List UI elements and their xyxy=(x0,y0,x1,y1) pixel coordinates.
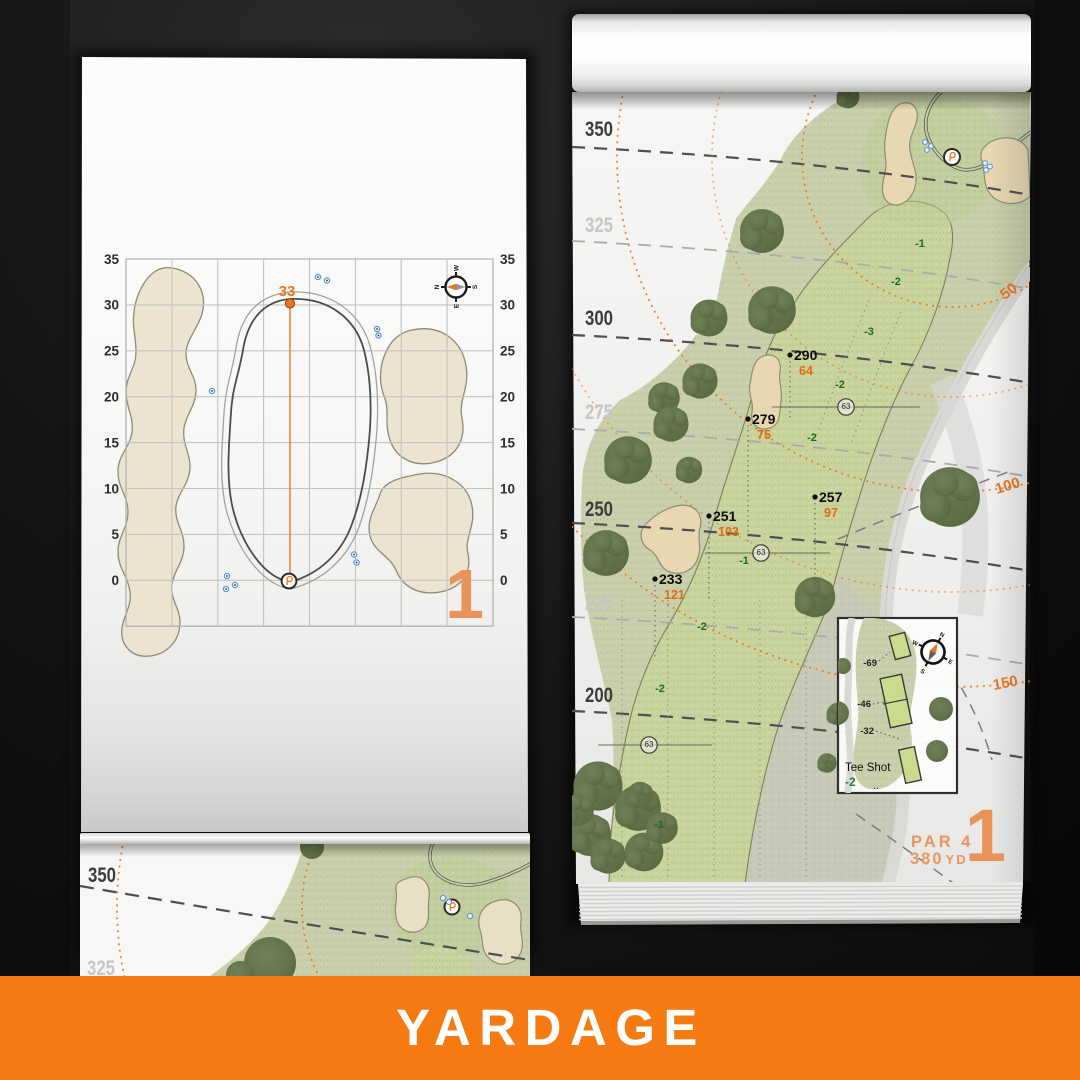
svg-text:300: 300 xyxy=(585,307,613,330)
svg-text:-3: -3 xyxy=(864,326,874,338)
svg-text:75: 75 xyxy=(757,428,771,442)
svg-text:0: 0 xyxy=(500,573,508,588)
svg-text:121: 121 xyxy=(664,588,685,602)
svg-text:225: 225 xyxy=(585,592,613,615)
svg-text:-2: -2 xyxy=(697,621,707,633)
svg-text:251: 251 xyxy=(713,508,737,524)
svg-text:-2: -2 xyxy=(807,432,817,444)
svg-text:25: 25 xyxy=(500,344,516,359)
svg-text:275: 275 xyxy=(585,401,613,424)
svg-text:-2: -2 xyxy=(891,276,901,288)
svg-text:64: 64 xyxy=(799,364,813,378)
svg-text:-32: -32 xyxy=(860,726,874,737)
svg-text:5: 5 xyxy=(500,527,508,542)
svg-text:-1: -1 xyxy=(739,555,749,567)
svg-text:63: 63 xyxy=(757,548,766,557)
svg-text:350: 350 xyxy=(88,864,116,887)
svg-text:-1: -1 xyxy=(915,238,925,250)
svg-text:20: 20 xyxy=(500,390,515,405)
svg-text:33: 33 xyxy=(279,283,296,300)
svg-text:35: 35 xyxy=(500,252,516,267)
svg-text:30: 30 xyxy=(500,298,515,313)
svg-text:N: N xyxy=(434,284,441,289)
svg-text:63: 63 xyxy=(842,402,851,411)
svg-text:0: 0 xyxy=(111,573,119,588)
svg-text:Tee Shot: Tee Shot xyxy=(845,762,891,774)
svg-text:15: 15 xyxy=(500,435,516,450)
svg-text:5: 5 xyxy=(111,527,119,542)
svg-text:63: 63 xyxy=(645,740,654,749)
svg-text:20: 20 xyxy=(104,390,119,405)
svg-text:W: W xyxy=(454,264,461,271)
svg-text:10: 10 xyxy=(104,481,119,496)
svg-text:257: 257 xyxy=(819,489,843,505)
svg-text:200: 200 xyxy=(585,684,613,707)
svg-text:-69: -69 xyxy=(863,658,877,669)
svg-text:-2: -2 xyxy=(655,683,665,695)
svg-text:15: 15 xyxy=(104,435,120,450)
svg-text:279: 279 xyxy=(752,411,776,427)
svg-text:-46: -46 xyxy=(857,699,871,710)
svg-text:25: 25 xyxy=(104,344,120,359)
svg-text:35: 35 xyxy=(104,252,120,267)
svg-text:350: 350 xyxy=(585,118,613,141)
svg-text:97: 97 xyxy=(824,506,838,520)
svg-text:S: S xyxy=(472,284,479,289)
svg-text:233: 233 xyxy=(659,571,683,587)
svg-text:30: 30 xyxy=(104,298,119,313)
svg-text:1: 1 xyxy=(445,555,484,633)
svg-text:103: 103 xyxy=(718,525,739,539)
svg-text:YARDAGE: YARDAGE xyxy=(396,999,706,1056)
svg-text:325: 325 xyxy=(585,214,613,237)
svg-text:E: E xyxy=(454,303,461,308)
svg-text:1: 1 xyxy=(965,794,1006,877)
svg-text:380YD: 380YD xyxy=(910,850,968,868)
svg-text:10: 10 xyxy=(500,481,515,496)
svg-text:-2: -2 xyxy=(835,379,845,391)
svg-text:-1: -1 xyxy=(654,819,664,831)
svg-text:..: .. xyxy=(873,780,879,792)
svg-text:290: 290 xyxy=(794,347,818,363)
svg-text:-2: -2 xyxy=(845,775,856,789)
svg-text:250: 250 xyxy=(585,498,613,521)
